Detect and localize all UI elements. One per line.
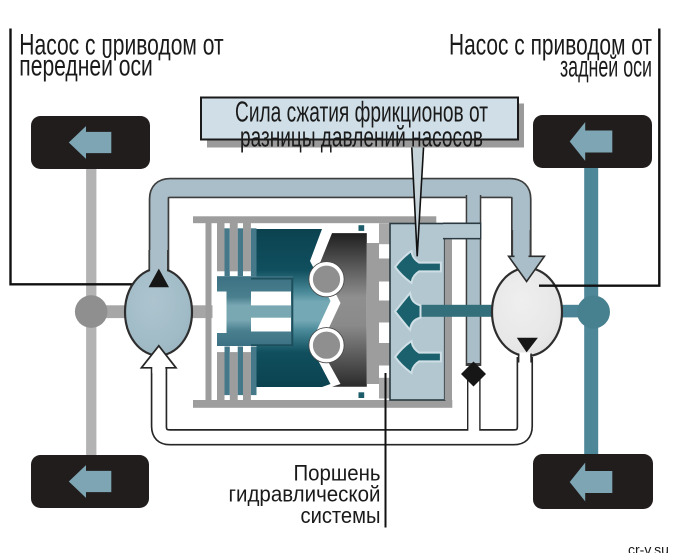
svg-text:задней оси: задней оси xyxy=(560,50,652,83)
svg-text:системы: системы xyxy=(301,503,381,528)
svg-text:разницы давлений насосов: разницы давлений насосов xyxy=(240,121,483,153)
svg-text:передней оси: передней оси xyxy=(19,50,153,83)
svg-text:cr-v.su: cr-v.su xyxy=(628,542,669,553)
